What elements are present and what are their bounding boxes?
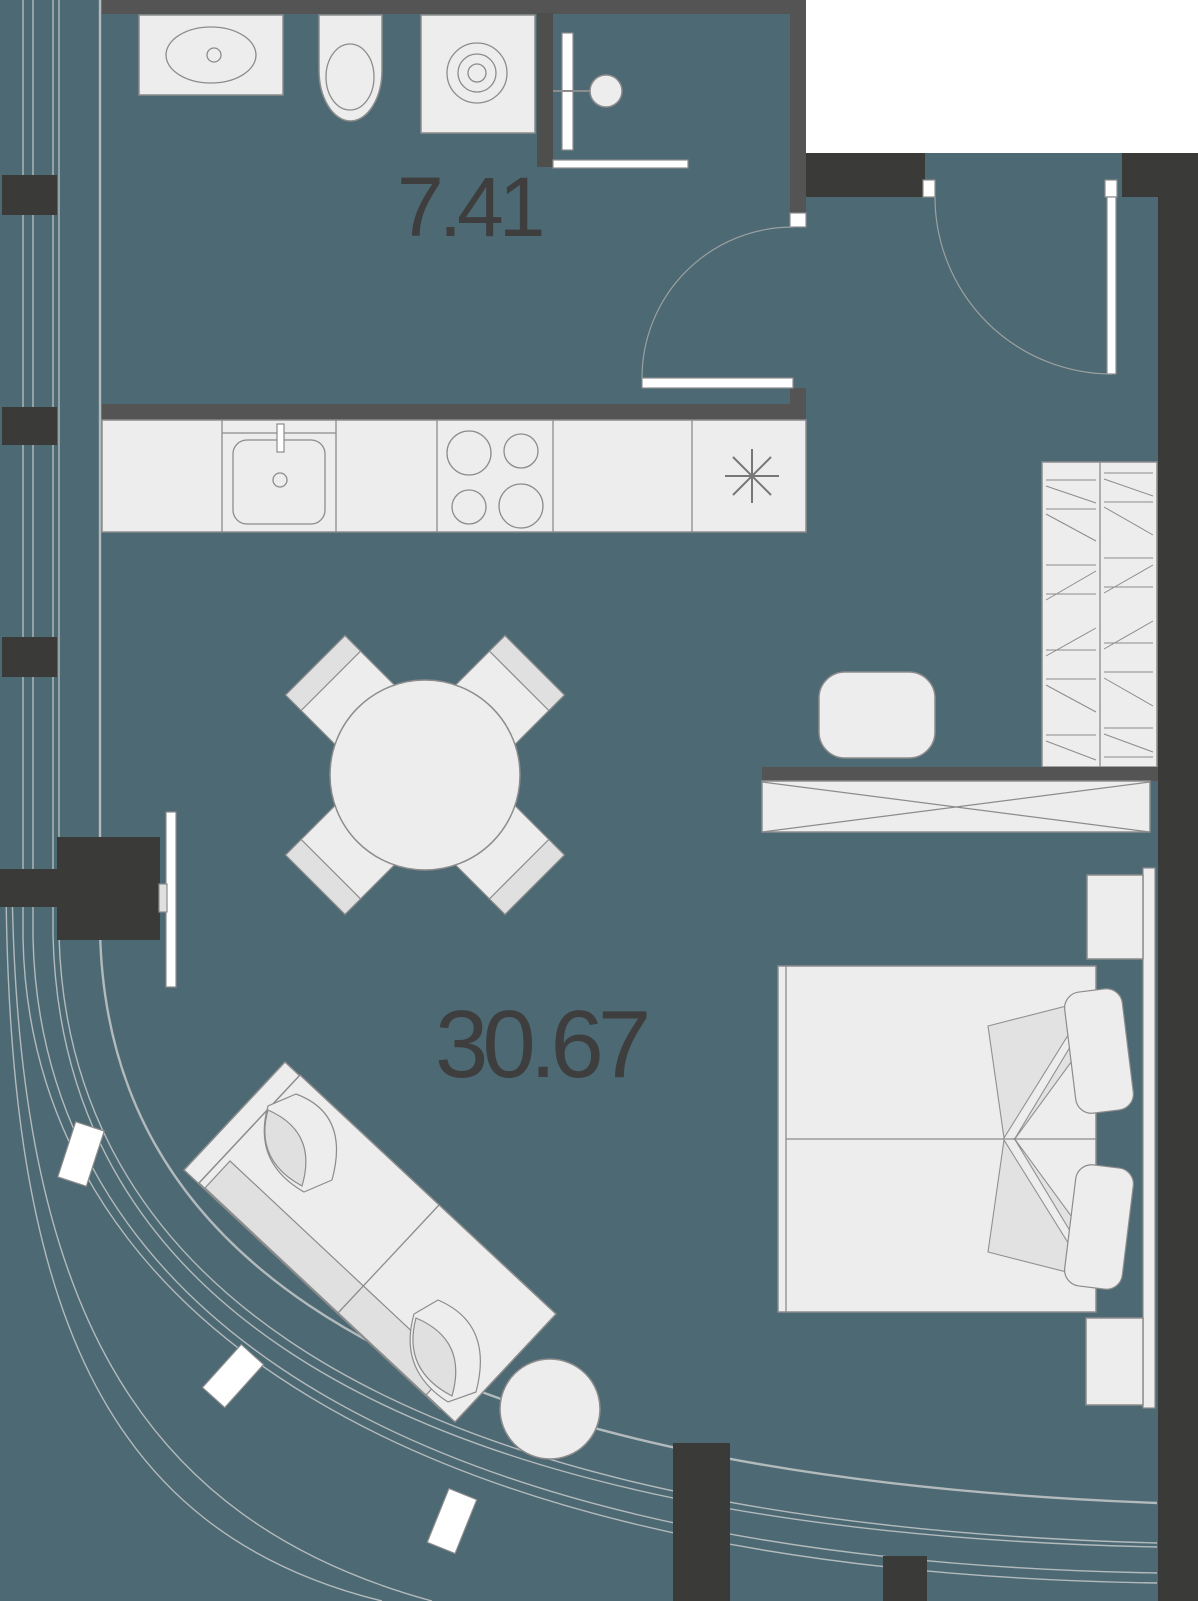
- area-label-bathroom: 7.41: [397, 160, 542, 254]
- toilet-icon: [319, 15, 382, 121]
- side-table-icon: [500, 1359, 600, 1459]
- desk-chair-icon: [819, 672, 935, 758]
- headboard: [1143, 868, 1155, 1408]
- dining-table-icon: [330, 680, 520, 870]
- washing-machine-icon: [421, 15, 535, 133]
- fridge-snowflake-icon: [725, 449, 779, 503]
- bathroom-sink-icon: [139, 15, 283, 95]
- outside-area: [806, 0, 1198, 153]
- nightstand-icon: [1087, 875, 1143, 959]
- nightstand-icon: [1086, 1318, 1143, 1405]
- wardrobe-icon: [1042, 462, 1157, 767]
- floorplan-canvas: 7.41 30.67: [0, 0, 1198, 1601]
- desk-icon: [762, 781, 1150, 832]
- kitchen-counter: [102, 420, 806, 532]
- area-label-living-room: 30.67: [435, 991, 647, 1098]
